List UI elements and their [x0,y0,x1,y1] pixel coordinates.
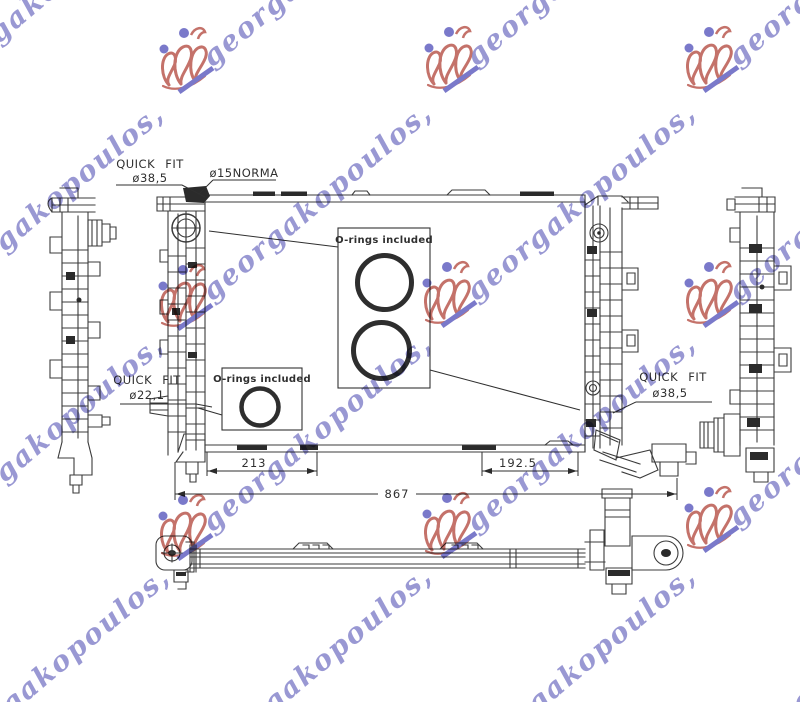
quick-fit-left-value: ø22,1 [129,388,164,402]
norma-label: ø15NORMA [199,166,279,194]
left-tank [150,186,210,482]
orings-small-title: O-rings included [213,374,311,385]
quick-fit-top-title: QUICK FIT [116,157,184,171]
radiator-technical-drawing: O-rings included O-rings included QUICK … [0,0,800,702]
orings-callout-small: O-rings included [213,368,311,430]
right-side-top-pipe [727,188,775,212]
right-tank-bolt [587,309,597,317]
watermark-text: georgakopoulos, [459,0,702,72]
brand-logo-mark [685,27,739,91]
watermark-text: georgakopoulos, [0,0,165,100]
watermark-text: georgakopoulos, [459,559,702,702]
norma-clamp [183,186,210,203]
brand-logo-mark [685,262,739,326]
right-side-bolt [747,418,760,427]
right-tank-bottom-connector [594,430,658,478]
watermark-text: georgakopoulos, [195,0,438,73]
left-tank-bolt [188,352,197,358]
left-side-port [88,220,116,246]
watermark-text: georgakopoulos, [721,0,800,72]
callout-leader-large-right [430,370,580,410]
watermark-text: georgakopoulos, [723,559,800,702]
right-tank-foot [652,444,696,476]
right-side-bolt [749,304,762,313]
orings-large-title: O-rings included [335,235,433,246]
bottom-bar [190,549,585,568]
watermark-text: georgakopoulos, [0,328,171,540]
left-side-bolt [66,336,75,344]
right-side-connector [700,414,740,456]
watermark-text: georgakopoulos, [195,327,438,539]
watermark-layer: georgakopoulos, georgakopoulos, georgako… [0,0,800,702]
left-side-bolt [66,272,75,280]
watermark-text: georgakopoulos, [0,560,177,702]
watermark-text: georgakopoulos, [721,96,800,308]
left-tank-foot [176,434,205,482]
left-side-rivet [77,298,82,303]
right-side-bolt [749,364,762,373]
watermark-text: georgakopoulos, [0,97,171,309]
right-tank-bolt [587,246,597,254]
right-side-view [700,188,791,482]
watermark-text: georgakopoulos, [195,559,438,702]
dim-867-value: 867 [385,487,410,501]
watermark-text: georgakopoulos, [721,322,800,534]
right-tank-port-upper-dot [597,231,601,235]
drawing-canvas: O-rings included O-rings included QUICK … [0,0,800,702]
quick-fit-top-value: ø38,5 [132,171,167,185]
watermark-text: georgakopoulos, [459,327,702,539]
callout-leader-small [198,408,222,415]
right-side-foot-bolt [750,452,768,460]
norma-text: ø15NORMA [209,166,278,180]
